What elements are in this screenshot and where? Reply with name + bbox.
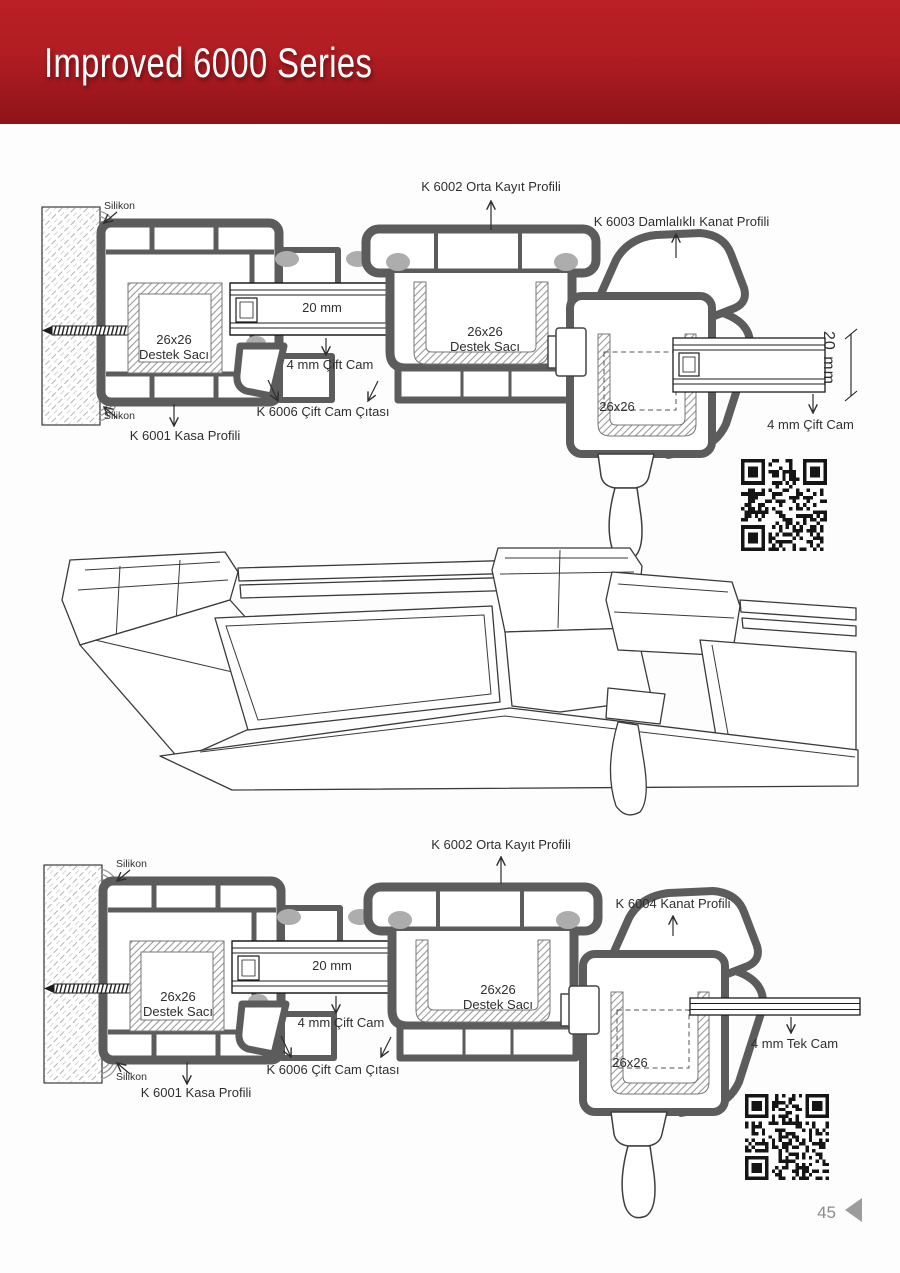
label-glass-unit-width-top: 20 mm [282,300,362,315]
label-destek-saci-sash-top: 26x26 [592,399,642,414]
label-cift-cam-citasi-top: K 6006 Çift Cam Çıtası [252,404,394,419]
page-number: 45 [806,1203,836,1223]
label-silikon-bottom-bottom: Silikon [116,1071,147,1083]
label-tek-cam: 4 mm Tek Cam [746,1036,843,1051]
label-cift-cam-middle-bottom: 4 mm Çift Cam [290,1015,392,1030]
label-glass-unit-width-bottom: 20 mm [292,958,372,973]
label-orta-kayit-profili-top: K 6002 Orta Kayıt Profili [400,179,582,194]
bottom-cross-section [44,857,860,1218]
label-kasa-profili-top: K 6001 Kasa Profili [129,428,241,443]
label-silikon-top-bottom: Silikon [116,858,147,870]
label-damlalikli-kanat-profili: K 6003 Damlalıklı Kanat Profili [589,214,774,229]
label-kanat-profili: K 6004 Kanat Profili [612,896,734,911]
label-silikon-bottom-top: Silikon [104,410,135,422]
top-cross-section [42,201,857,560]
label-destek-saci-frame-top: 26x26 Destek Sacı [122,332,226,363]
qr-code-bottom [745,1094,829,1180]
label-destek-saci-mullion-bottom: 26x26 Destek Sacı [446,982,550,1013]
label-destek-saci-sash-bottom: 26x26 [605,1055,655,1070]
label-glass-thickness-dimension: 20 mm [818,331,837,395]
prev-page-arrow-icon [845,1198,862,1222]
label-cift-cam-right-top: 4 mm Çift Cam [762,417,859,432]
catalog-page: Improved 6000 Series [0,0,900,1273]
label-orta-kayit-profili-bottom: K 6002 Orta Kayıt Profili [410,837,592,852]
label-cift-cam-citasi-bottom: K 6006 Çift Cam Çıtası [262,1062,404,1077]
label-cift-cam-middle-top: 4 mm Çift Cam [279,357,381,372]
qr-code-top [741,459,827,551]
label-silikon-top: Silikon [104,200,135,212]
isometric-view [62,548,858,815]
label-destek-saci-frame-bottom: 26x26 Destek Sacı [126,989,230,1020]
label-kasa-profili-bottom: K 6001 Kasa Profili [140,1085,252,1100]
label-destek-saci-mullion-top: 26x26 Destek Sacı [433,324,537,355]
